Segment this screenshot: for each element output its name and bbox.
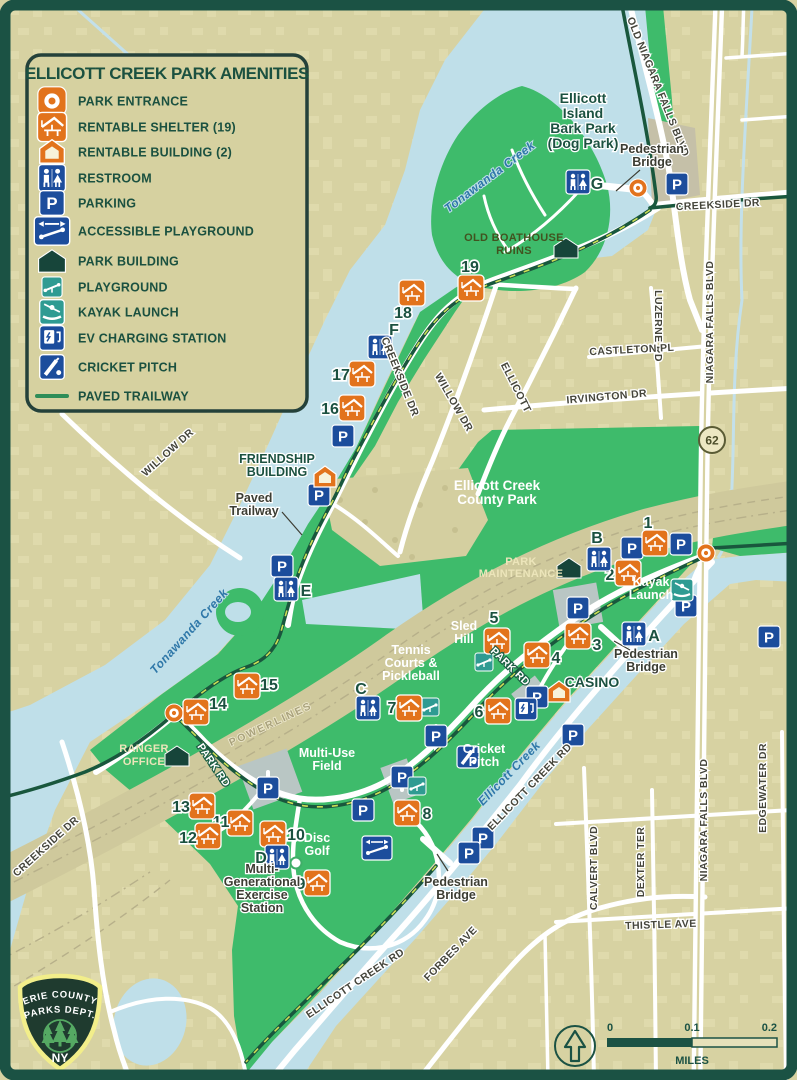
scale-unit: MILES (675, 1055, 709, 1067)
restroom-A-letter: A (648, 628, 660, 645)
legend-entrance-sq-icon (38, 87, 66, 115)
shelter-18-marker (399, 280, 425, 306)
road-label: DEXTER TER (635, 827, 647, 898)
legend-item-label: PARK BUILDING (78, 255, 179, 269)
restroom-C-letter: C (355, 681, 367, 698)
legend-item-label: RENTABLE BUILDING (2) (78, 146, 232, 160)
shelter-7-number: 7 (388, 700, 397, 717)
route-number: 62 (705, 434, 719, 448)
map-label: CASINO (565, 674, 620, 690)
shelter-3-number: 3 (593, 637, 602, 654)
road-label: EDGEWATER DR (757, 743, 769, 833)
shelter-10-marker (260, 821, 286, 847)
legend-shelter-icon (37, 112, 66, 141)
shelter-8-marker (394, 800, 420, 826)
legend-parking-icon (40, 191, 65, 216)
legend-item-label: RENTABLE SHELTER (19) (78, 121, 236, 135)
map-label: PavedTrailway (229, 491, 278, 518)
logo-state: NY (52, 1051, 69, 1065)
parking-marker (332, 425, 354, 447)
shelter-11-marker (227, 810, 253, 836)
map-label: DiscGolf (304, 831, 331, 858)
shelter-14-marker (183, 699, 209, 725)
restroom-B-marker (587, 547, 611, 571)
shelter-12-marker (195, 823, 221, 849)
legend-item-label: EV CHARGING STATION (78, 332, 226, 346)
road-label: NIAGARA FALLS BLVD (704, 261, 716, 384)
parking-marker (458, 842, 480, 864)
legend-item-label: CRICKET PITCH (78, 361, 177, 375)
parking-marker (257, 777, 279, 799)
shelter-5-number: 5 (490, 610, 499, 627)
parking-marker (271, 555, 293, 577)
kayak-launch-marker (671, 579, 693, 601)
shelter-7-marker (396, 695, 422, 721)
legend-playground-icon (42, 277, 62, 297)
parking-marker (670, 533, 692, 555)
shelter-13-marker (189, 793, 215, 819)
scale-tick-label: 0 (607, 1022, 613, 1034)
shelter-17-marker (349, 361, 375, 387)
park-map: P (0, 0, 797, 1080)
legend-item-label: RESTROOM (78, 172, 152, 186)
legend-accessible-icon (34, 217, 69, 245)
playground-marker (408, 777, 426, 795)
legend-item-label: ACCESSIBLE PLAYGROUND (78, 225, 254, 239)
map-label: FRIENDSHIPBUILDING (239, 452, 315, 479)
legend-ev-icon (40, 326, 65, 351)
restroom-A-marker (622, 622, 646, 646)
shelter-8-number: 8 (423, 806, 432, 823)
park-entrance-marker (165, 704, 183, 722)
shelter-19-number: 19 (461, 259, 479, 276)
shelter-1-marker (642, 530, 668, 556)
parking-marker (621, 537, 643, 559)
shelter-10-number: 10 (287, 827, 305, 844)
map-label: SledHill (451, 619, 477, 646)
shelter-1-number: 1 (644, 515, 653, 532)
restroom-G-letter: G (591, 176, 603, 193)
shelter-12-number: 12 (179, 830, 197, 847)
legend-title: ELLICOTT CREEK PARK AMENITIES (25, 64, 309, 83)
map-canvas: P (0, 0, 797, 1080)
shelter-14-number: 14 (209, 696, 227, 713)
legend-item-label: KAYAK LAUNCH (78, 306, 179, 320)
park-entrance-marker (629, 179, 647, 197)
shelter-18-number: 18 (394, 305, 412, 322)
shelter-17-number: 17 (332, 367, 350, 384)
parking-marker (352, 799, 374, 821)
accessible-playground-marker (362, 836, 392, 860)
legend-cricket-icon (40, 355, 65, 380)
shelter-15-marker (234, 673, 260, 699)
shelter-6-marker (485, 698, 511, 724)
restroom-C-marker (356, 696, 380, 720)
shelter-4-marker (524, 642, 550, 668)
road-label: CALVERT BLVD (588, 826, 600, 910)
shelter-16-marker (339, 395, 365, 421)
scale-tick-label: 0.2 (762, 1022, 777, 1034)
road-label: NIAGARA FALLS BLVD (698, 759, 710, 882)
exercise-station-marker (291, 858, 302, 869)
shelter-13-number: 13 (172, 799, 190, 816)
ev-charging-marker (515, 698, 537, 720)
scale-tick-label: 0.1 (684, 1022, 699, 1034)
shelter-3-marker (565, 623, 591, 649)
restroom-B-letter: B (591, 530, 603, 547)
restroom-E-letter: E (301, 583, 312, 600)
legend-restroom-icon (39, 165, 66, 192)
playground-marker (421, 698, 439, 716)
legend-panel: ELLICOTT CREEK PARK AMENITIES PARK ENTRA… (25, 55, 309, 411)
legend-kayak-icon (40, 300, 65, 325)
legend-item-label: PAVED TRAILWAY (78, 390, 189, 404)
parking-marker (666, 173, 688, 195)
shelter-16-number: 16 (321, 401, 339, 418)
map-label: KayakLaunch (629, 575, 673, 602)
shelter-9-marker (304, 870, 330, 896)
park-entrance-marker (697, 544, 715, 562)
small-pond (225, 602, 251, 622)
route-62-shield: 62 (699, 427, 725, 453)
restroom-G-marker (566, 170, 590, 194)
map-label: RANGEROFFICE (119, 743, 168, 768)
legend-item-label: PLAYGROUND (78, 281, 168, 295)
shelter-15-number: 15 (260, 677, 278, 694)
shelter-6-number: 6 (475, 704, 484, 721)
legend-item-label: PARK ENTRANCE (78, 95, 188, 109)
parking-marker (758, 626, 780, 648)
restroom-E-marker (274, 577, 298, 601)
shelter-19-marker (458, 275, 484, 301)
parking-marker (425, 725, 447, 747)
road-label: THISTLE AVE (625, 918, 697, 932)
map-label: Ellicott CreekCounty Park (454, 478, 541, 507)
legend-item-label: PARKING (78, 197, 136, 211)
shelter-4-number: 4 (552, 650, 561, 667)
parking-marker (567, 597, 589, 619)
